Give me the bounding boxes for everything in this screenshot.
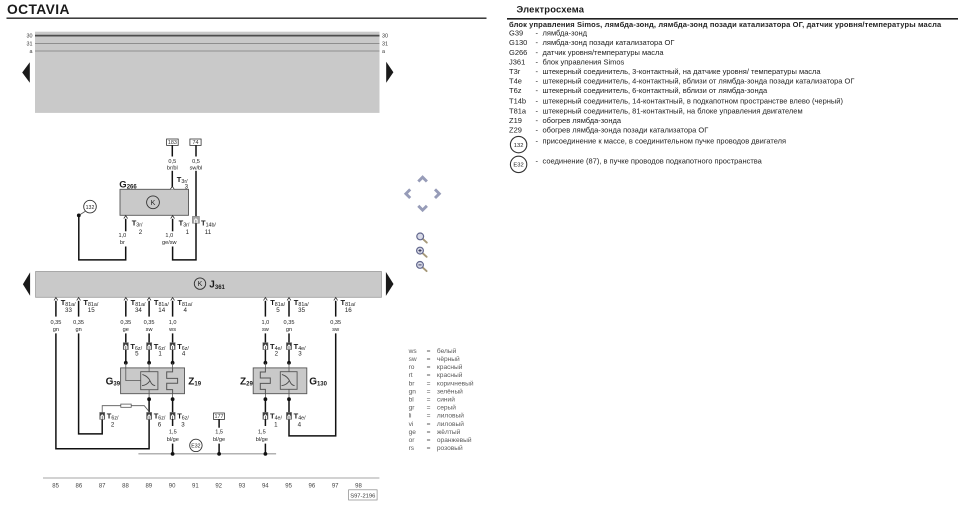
svg-text:93: 93 bbox=[239, 483, 246, 489]
svg-text:T3r-штекерный соединитель, 3-к: T3r-штекерный соединитель, 3-контактный,… bbox=[509, 67, 821, 76]
svg-text:2: 2 bbox=[275, 350, 279, 357]
svg-text:74: 74 bbox=[193, 140, 199, 146]
svg-text:br: br bbox=[120, 240, 125, 246]
svg-text:35: 35 bbox=[298, 307, 305, 314]
svg-text:1,0: 1,0 bbox=[119, 233, 127, 239]
svg-text:1,5: 1,5 bbox=[169, 430, 177, 436]
svg-text:16: 16 bbox=[345, 307, 352, 314]
svg-text:3: 3 bbox=[181, 422, 185, 429]
svg-text:97: 97 bbox=[332, 483, 339, 489]
svg-text:K: K bbox=[198, 281, 203, 288]
svg-text:T6z-штекерный соединитель, 6-к: T6z-штекерный соединитель, 6-контактный,… bbox=[509, 86, 768, 95]
svg-text:2: 2 bbox=[111, 422, 115, 429]
svg-text:94: 94 bbox=[262, 483, 269, 489]
svg-text:ge: ge bbox=[123, 327, 129, 333]
svg-text:0,5: 0,5 bbox=[192, 159, 200, 165]
svg-text:95: 95 bbox=[285, 483, 292, 489]
svg-text:0,35: 0,35 bbox=[284, 320, 295, 326]
svg-text:a: a bbox=[382, 49, 385, 55]
svg-text:gn: gn bbox=[53, 327, 59, 333]
svg-text:15: 15 bbox=[88, 307, 95, 314]
svg-text:4: 4 bbox=[298, 422, 302, 429]
svg-text:-присоединение к массе, в соед: -присоединение к массе, в соединительном… bbox=[536, 136, 787, 145]
svg-text:1,0: 1,0 bbox=[165, 233, 173, 239]
svg-text:sw: sw bbox=[262, 327, 270, 333]
svg-text:0,35: 0,35 bbox=[120, 320, 131, 326]
svg-text:92: 92 bbox=[215, 483, 222, 489]
svg-text:14: 14 bbox=[158, 307, 165, 314]
svg-text:3: 3 bbox=[298, 350, 302, 357]
svg-text:4: 4 bbox=[182, 350, 186, 357]
svg-text:11: 11 bbox=[205, 229, 212, 236]
svg-text:gn: gn bbox=[286, 327, 292, 333]
svg-text:3: 3 bbox=[185, 184, 189, 191]
svg-text:T14b-штекерный соединитель, 14: T14b-штекерный соединитель, 14-контактны… bbox=[509, 96, 843, 105]
svg-text:0,35: 0,35 bbox=[330, 320, 341, 326]
svg-text:K: K bbox=[151, 200, 156, 207]
svg-text:1: 1 bbox=[186, 229, 190, 236]
svg-text:5: 5 bbox=[276, 307, 280, 314]
svg-text:5: 5 bbox=[135, 350, 139, 357]
svg-text:0,35: 0,35 bbox=[73, 320, 84, 326]
svg-text:bl/ge: bl/ge bbox=[256, 437, 268, 443]
svg-text:85: 85 bbox=[52, 483, 59, 489]
svg-text:sw: sw bbox=[332, 327, 340, 333]
svg-text:31: 31 bbox=[27, 42, 33, 48]
svg-text:90: 90 bbox=[169, 483, 176, 489]
svg-text:86: 86 bbox=[76, 483, 83, 489]
svg-text:E32: E32 bbox=[191, 444, 200, 450]
svg-text:ws: ws bbox=[168, 327, 176, 333]
svg-text:bl/ge: bl/ge bbox=[213, 437, 225, 443]
svg-text:1: 1 bbox=[274, 422, 278, 429]
svg-text:1,5: 1,5 bbox=[215, 430, 223, 436]
svg-text:-соединение (87), в пучке пров: -соединение (87), в пучке проводов подка… bbox=[536, 157, 763, 166]
svg-text:gn: gn bbox=[75, 327, 81, 333]
svg-text:2: 2 bbox=[139, 229, 143, 236]
svg-text:89: 89 bbox=[145, 483, 152, 489]
svg-text:98: 98 bbox=[355, 483, 362, 489]
svg-text:4: 4 bbox=[183, 307, 187, 314]
svg-text:132: 132 bbox=[514, 143, 524, 149]
svg-text:T81a-штекерный соединитель, 81: T81a-штекерный соединитель, 81-контактны… bbox=[509, 106, 803, 115]
svg-text:96: 96 bbox=[309, 483, 316, 489]
svg-text:S97-2196: S97-2196 bbox=[350, 493, 375, 499]
svg-text:91: 91 bbox=[192, 483, 199, 489]
svg-text:T4e-штекерный соединитель, 4-к: T4e-штекерный соединитель, 4-контактный,… bbox=[509, 77, 854, 86]
svg-text:br/bl: br/bl bbox=[167, 166, 178, 172]
svg-text:1,0: 1,0 bbox=[262, 320, 270, 326]
svg-text:132: 132 bbox=[86, 205, 95, 211]
svg-text:33: 33 bbox=[65, 307, 72, 314]
svg-text:a: a bbox=[30, 49, 33, 55]
svg-text:31: 31 bbox=[382, 42, 388, 48]
svg-text:30: 30 bbox=[382, 34, 388, 40]
svg-text:30: 30 bbox=[27, 34, 33, 40]
svg-text:bl/ge: bl/ge bbox=[167, 437, 179, 443]
svg-text:183: 183 bbox=[168, 140, 177, 146]
svg-text:G39-лямбда-зонд: G39-лямбда-зонд bbox=[509, 29, 588, 38]
svg-text:0,35: 0,35 bbox=[50, 320, 61, 326]
svg-text:ge/sw: ge/sw bbox=[162, 240, 178, 246]
svg-text:OCTAVIA: OCTAVIA bbox=[7, 2, 70, 17]
svg-text:88: 88 bbox=[122, 483, 129, 489]
svg-text:sw/bl: sw/bl bbox=[190, 166, 203, 172]
svg-text:sw: sw bbox=[146, 327, 154, 333]
svg-text:0,35: 0,35 bbox=[144, 320, 155, 326]
svg-text:87: 87 bbox=[99, 483, 106, 489]
svg-text:Электросхема: Электросхема bbox=[517, 3, 585, 14]
svg-text:1,0: 1,0 bbox=[169, 320, 177, 326]
svg-text:0,5: 0,5 bbox=[168, 159, 176, 165]
svg-text:1,5: 1,5 bbox=[258, 430, 266, 436]
svg-text:177: 177 bbox=[215, 414, 224, 420]
svg-text:6: 6 bbox=[158, 422, 162, 429]
svg-text:34: 34 bbox=[135, 307, 142, 314]
svg-text:1: 1 bbox=[158, 350, 162, 357]
svg-text:E32: E32 bbox=[513, 163, 523, 169]
